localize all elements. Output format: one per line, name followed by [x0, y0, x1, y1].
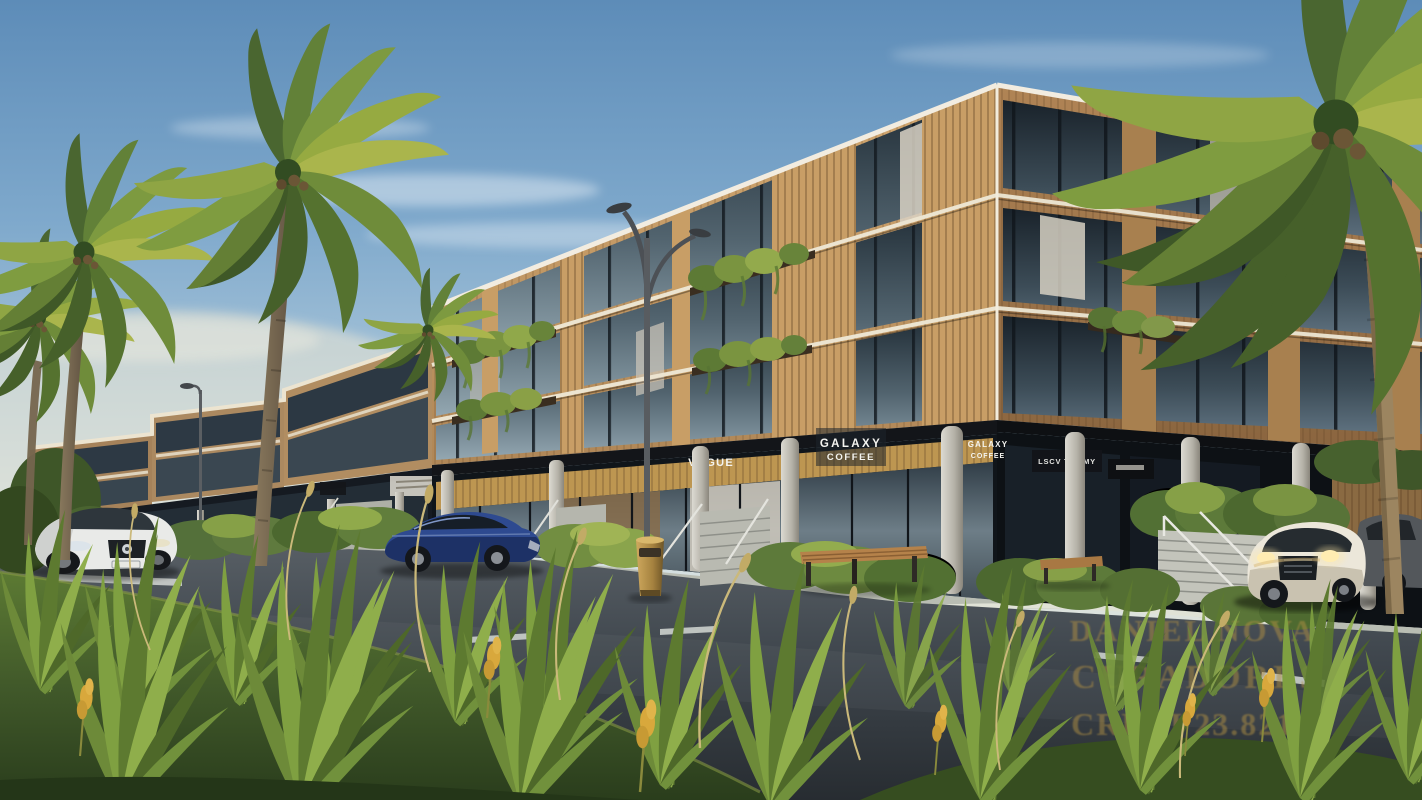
galaxy-coffee-right-sign-line2: COFFEE: [971, 453, 1005, 460]
lamp-head-icon: [180, 383, 194, 389]
galaxy-coffee-sign-line2: COFFEE: [827, 452, 875, 463]
galaxy-coffee-sign-line1: GALAXY: [820, 438, 882, 450]
galaxy-coffee-right-sign-line1: GALAXY: [968, 440, 1009, 449]
render-canvas: GALAXY COFFEE VOGUE GALAXY COFFEE LSCV T…: [0, 0, 1422, 800]
architectural-render: GALAXY COFFEE VOGUE GALAXY COFFEE LSCV T…: [0, 0, 1422, 800]
